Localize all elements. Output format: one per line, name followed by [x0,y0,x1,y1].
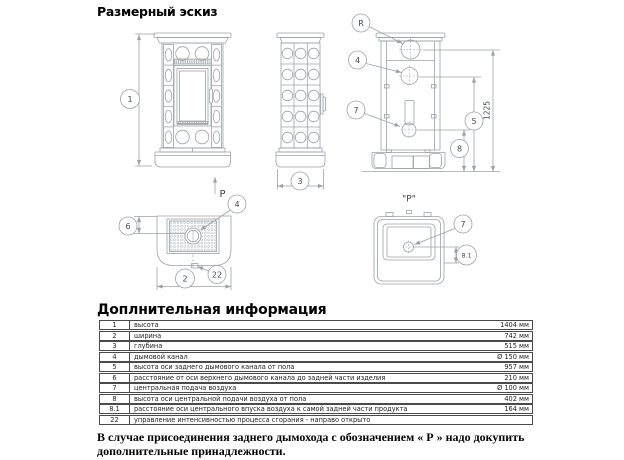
info-section-title: Доплнительная информация [97,302,326,318]
side-view: 3 [276,33,326,190]
stove-base-rear [372,153,445,169]
table-row: 2 ширина 742 мм [99,331,533,341]
row-value: Ø 150 мм [497,353,532,361]
row-label: высота оси заднего дымового канала от по… [130,363,504,371]
row-value: 1404 мм [500,321,532,329]
svg-text:1225: 1225 [483,101,492,120]
row-value: 210 мм [504,374,532,382]
balloon-2: 2 [176,269,195,288]
balloon-7-rear: 7 [347,101,400,127]
rear-view: R 4 7 1225 [347,14,500,172]
row-value: 742 мм [504,332,532,340]
row-label: высота [130,321,500,329]
row-number: 1 [100,321,130,329]
svg-text:P: P [220,189,226,200]
front-view: 1 P [121,33,232,200]
table-row: 5 высота оси заднего дымового канала от … [99,362,533,372]
door-handle [210,89,213,103]
leader-line [366,64,402,73]
stove-base-side [276,152,325,167]
p-direction-arrow: P [215,177,226,200]
table-row: 1 высота 1404 мм [99,320,533,330]
row-number: 6 [100,374,130,382]
page: Размерный эскиз [0,0,624,460]
table-row: 4 дымовой канал Ø 150 мм [99,352,533,362]
balloon-1: 1 [121,90,140,109]
row-label: центральная подача воздуха [130,384,497,392]
row-number: 2 [100,332,130,340]
balloon-22: 22 [198,266,227,284]
dimensional-sketch: 1 P [0,0,624,300]
row-value: Ø 100 мм [497,384,532,392]
row-label: дымовой канал [130,353,497,361]
rear-view-label: "Р" [402,195,416,205]
row-label: высота оси центральной подачи воздуха от… [130,395,504,403]
table-row: 8.1 расстояние оси центрального впуска в… [99,404,533,414]
svg-text:5: 5 [471,117,476,126]
row-number: 22 [100,416,130,424]
svg-text:3: 3 [297,177,302,186]
row-value: 515 мм [504,342,532,350]
footnote: В случае присоединения заднего дымохода … [97,430,552,458]
balloon-5: 5 [465,112,483,130]
leader-line [365,114,401,127]
svg-text:7: 7 [353,106,358,115]
row-value: 402 мм [504,395,532,403]
table-row: 3 глубина 515 мм [99,341,533,351]
row-number: 8 [100,395,130,403]
svg-text:8: 8 [457,144,462,153]
balloon-R: R [352,14,403,44]
table-row: 7 центральная подача воздуха Ø 100 мм [99,383,533,393]
row-number: 4 [100,353,130,361]
svg-text:1: 1 [127,95,132,104]
table-row: 8 высота оси центральной подачи воздуха … [99,394,533,404]
svg-text:2: 2 [182,274,187,283]
balloon-4-rear: 4 [349,51,402,73]
balloon-3: 3 [291,172,309,190]
svg-text:22: 22 [212,270,222,279]
row-label: глубина [130,342,504,350]
additional-info-table: 1 высота 1404 мм 2 ширина 742 мм 3 глуби… [99,320,533,425]
stove-base-front [155,152,231,167]
svg-text:8.1: 8.1 [461,252,471,259]
rear-connection-view: "Р" 7 [374,195,477,285]
row-value: 164 мм [504,405,532,413]
row-label: расстояние оси центрального впуска возду… [130,405,504,413]
row-number: 7 [100,384,130,392]
svg-text:7: 7 [460,220,465,229]
balloon-6: 6 [119,217,137,235]
svg-text:4: 4 [355,56,360,65]
balloon-8: 8 [451,140,469,158]
row-label: расстояние от оси верхнего дымового кана… [130,374,504,382]
row-number: 8.1 [100,405,130,413]
balloon-8-1: 8.1 [457,245,477,265]
leader-line [198,267,209,272]
row-number: 3 [100,342,130,350]
top-view: 6 4 2 22 [119,195,246,290]
svg-text:6: 6 [125,222,130,231]
row-label: ширина [130,332,504,340]
table-row: 6 расстояние от оси верхнего дымового ка… [99,373,533,383]
door-glass [180,71,206,121]
svg-text:R: R [358,19,364,28]
row-number: 5 [100,363,130,371]
table-row: 22 управление интенсивностью процесса сг… [99,415,533,425]
air-inlet-bottom [404,242,414,252]
row-value: 957 мм [504,363,532,371]
svg-text:4: 4 [234,200,239,209]
row-label: управление интенсивностью процесса сгора… [130,416,529,424]
